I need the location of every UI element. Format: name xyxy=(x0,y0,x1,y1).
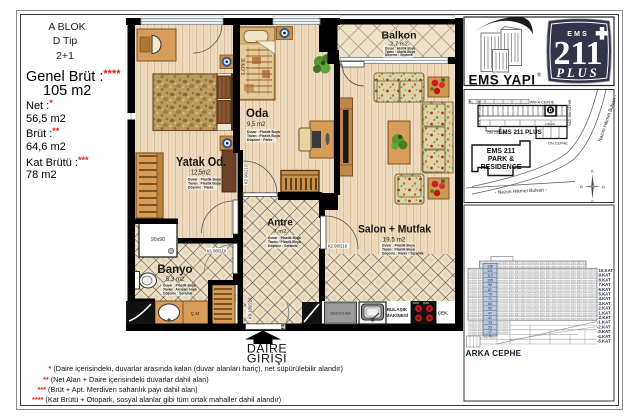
svg-text:121: 121 xyxy=(487,269,493,273)
svg-text:K2 90/210: K2 90/210 xyxy=(328,244,348,249)
svg-text:55: 55 xyxy=(488,307,492,311)
svg-text:B: B xyxy=(580,184,583,189)
svg-text:5,3 m2: 5,3 m2 xyxy=(166,277,185,283)
svg-text:Döşeme : Parke: Döşeme : Parke xyxy=(247,138,273,142)
svg-text:K: K xyxy=(591,169,594,174)
svg-text:A BLOK: A BLOK xyxy=(545,122,556,126)
svg-text:79: 79 xyxy=(488,293,492,297)
svg-text:K1 80/210: K1 80/210 xyxy=(207,249,227,254)
svg-text:EMS YAPI: EMS YAPI xyxy=(469,73,536,88)
svg-text:19,5 m2: 19,5 m2 xyxy=(383,237,406,244)
svg-text:G: G xyxy=(591,199,594,204)
svg-text:Salon + Mutfak: Salon + Mutfak xyxy=(358,224,432,236)
svg-text:ARKA CEPHE: ARKA CEPHE xyxy=(530,101,555,105)
svg-text:ÖN CEPHE: ÖN CEPHE xyxy=(548,142,568,146)
svg-text:9,5 m2: 9,5 m2 xyxy=(247,122,266,128)
svg-text:47: 47 xyxy=(488,311,492,315)
svg-text:33: 33 xyxy=(488,321,492,325)
svg-text:PARK &: PARK & xyxy=(488,156,514,163)
svg-text:63: 63 xyxy=(488,302,492,306)
svg-text:BULAŞIK: BULAŞIK xyxy=(387,307,408,312)
svg-text:87: 87 xyxy=(488,288,492,292)
svg-text:Döşeme : Parke: Döşeme : Parke xyxy=(188,186,214,190)
svg-text:Antre: Antre xyxy=(267,218,293,229)
svg-text:®: ® xyxy=(537,72,541,79)
svg-text:LOVE: LOVE xyxy=(241,58,247,75)
svg-text:D: D xyxy=(602,184,605,189)
svg-text:136: 136 xyxy=(487,264,493,268)
svg-text:Döşeme : Parke / Seramik: Döşeme : Parke / Seramik xyxy=(382,252,424,256)
svg-text:PLUS: PLUS xyxy=(556,66,599,80)
svg-text:25: 25 xyxy=(488,325,492,329)
svg-text:ÇEK.: ÇEK. xyxy=(438,311,449,316)
svg-text:MAKİNESİ: MAKİNESİ xyxy=(386,312,408,318)
svg-text:Döşeme : Seramik: Döşeme : Seramik xyxy=(385,53,413,57)
svg-text:GİRİŞİ: GİRİŞİ xyxy=(247,352,287,366)
svg-text:Ç.M: Ç.M xyxy=(191,311,200,317)
svg-text:SOL YAN CEPHE: SOL YAN CEPHE xyxy=(478,99,482,126)
svg-text:90x90: 90x90 xyxy=(151,237,165,243)
svg-text:SAĞ YAN CEPHE: SAĞ YAN CEPHE xyxy=(567,99,572,126)
svg-text:41: 41 xyxy=(488,316,492,320)
svg-text:BUZDOLABI: BUZDOLABI xyxy=(330,312,350,316)
svg-text:71: 71 xyxy=(488,297,492,301)
svg-text:Döşeme : Seramik: Döşeme : Seramik xyxy=(268,244,298,248)
svg-text:K3 100/210: K3 100/210 xyxy=(248,297,253,319)
svg-text:9: 9 xyxy=(489,334,491,338)
svg-text:D: D xyxy=(549,108,553,114)
svg-text:EMS 211: EMS 211 xyxy=(487,148,516,155)
svg-text:ARKA CEPHE: ARKA CEPHE xyxy=(466,349,522,358)
svg-text:95: 95 xyxy=(488,283,492,287)
svg-text:RESIDENCE: RESIDENCE xyxy=(481,164,522,171)
svg-text:Balkon: Balkon xyxy=(381,30,416,42)
svg-text:113: 113 xyxy=(487,274,493,278)
svg-text:EMS 211 PLUS: EMS 211 PLUS xyxy=(498,129,541,136)
svg-text:Yatak Od.: Yatak Od. xyxy=(176,154,226,169)
svg-text:Banyo: Banyo xyxy=(157,264,192,276)
svg-text:K2 90/210: K2 90/210 xyxy=(243,164,248,184)
svg-text:12,5m2: 12,5m2 xyxy=(191,170,210,177)
svg-text:7 m2: 7 m2 xyxy=(274,229,287,235)
svg-text:Oda: Oda xyxy=(246,108,269,120)
svg-text:105: 105 xyxy=(487,278,493,282)
svg-text:-5.KAT: -5.KAT xyxy=(597,339,611,344)
svg-text:Döşeme : Seramik: Döşeme : Seramik xyxy=(163,292,193,296)
